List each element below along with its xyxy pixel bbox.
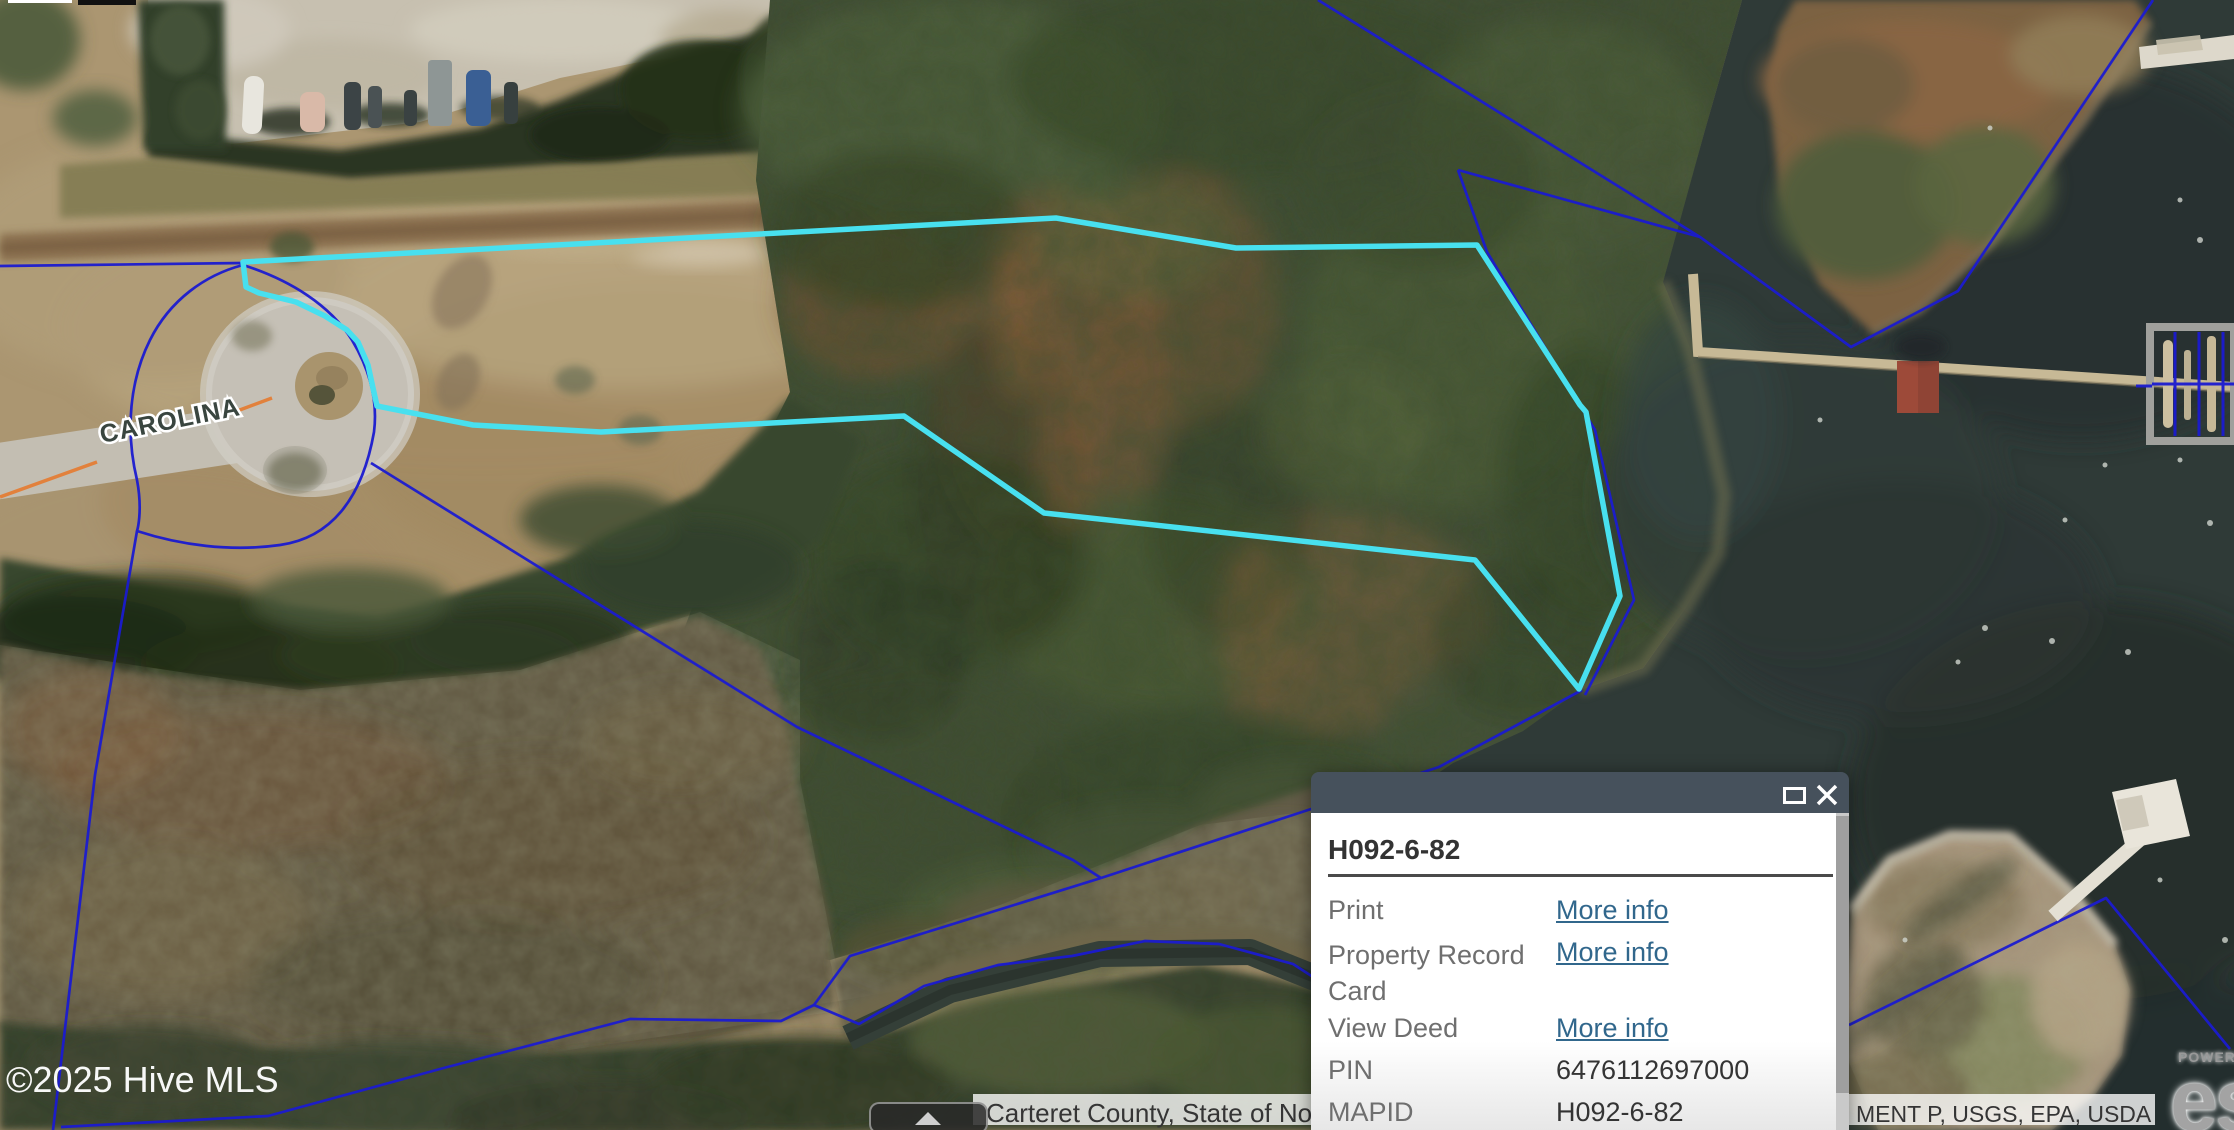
svg-text:©2025 Hive MLS: ©2025 Hive MLS [6,1059,279,1100]
